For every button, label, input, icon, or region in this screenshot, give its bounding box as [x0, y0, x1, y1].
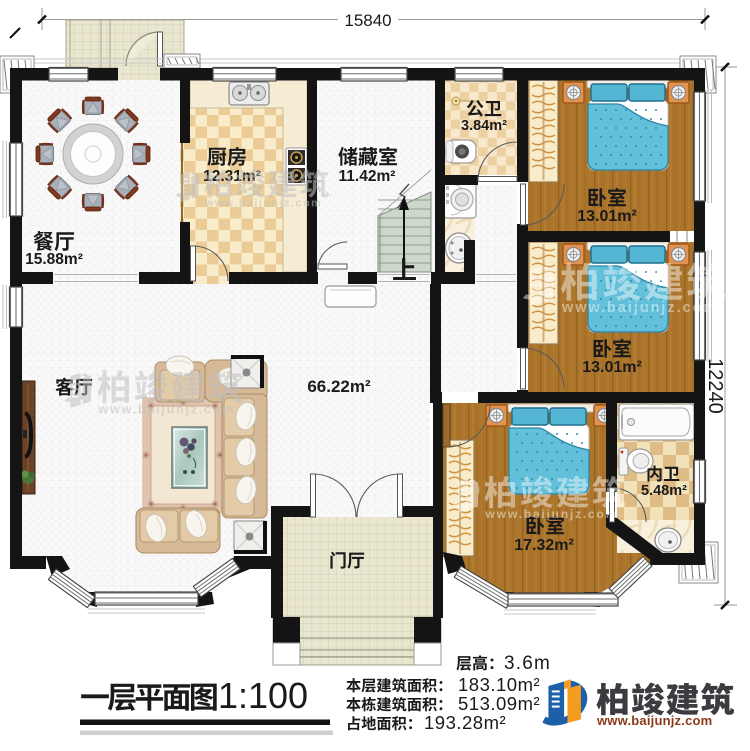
svg-text:www.baijunjz.com: www.baijunjz.com: [204, 197, 322, 209]
svg-text:www.baijunjz.com: www.baijunjz.com: [561, 300, 718, 316]
svg-text:17.32m²: 17.32m²: [514, 537, 574, 554]
svg-text:www.baijunjz.com: www.baijunjz.com: [596, 713, 712, 728]
svg-text:193.28m²: 193.28m²: [424, 712, 506, 733]
svg-text:12240: 12240: [704, 358, 726, 414]
svg-text:513.09m²: 513.09m²: [458, 693, 540, 714]
svg-text:5.48m²: 5.48m²: [641, 483, 687, 499]
svg-text:11.42m²: 11.42m²: [339, 168, 396, 185]
svg-text:15.88m²: 15.88m²: [25, 251, 83, 268]
svg-text:www.baijunjz.com: www.baijunjz.com: [484, 507, 618, 521]
svg-text:183.10m²: 183.10m²: [458, 674, 540, 695]
svg-text:66.22m²: 66.22m²: [307, 377, 371, 396]
svg-text:13.01m²: 13.01m²: [577, 208, 637, 225]
svg-text:15840: 15840: [344, 11, 391, 30]
svg-text:1:100: 1:100: [218, 675, 308, 716]
svg-text:www.baijunjz.com: www.baijunjz.com: [98, 402, 236, 416]
svg-text:13.01m²: 13.01m²: [582, 359, 642, 376]
svg-text:3.84m²: 3.84m²: [461, 118, 507, 134]
svg-text:3.6m: 3.6m: [504, 653, 551, 674]
